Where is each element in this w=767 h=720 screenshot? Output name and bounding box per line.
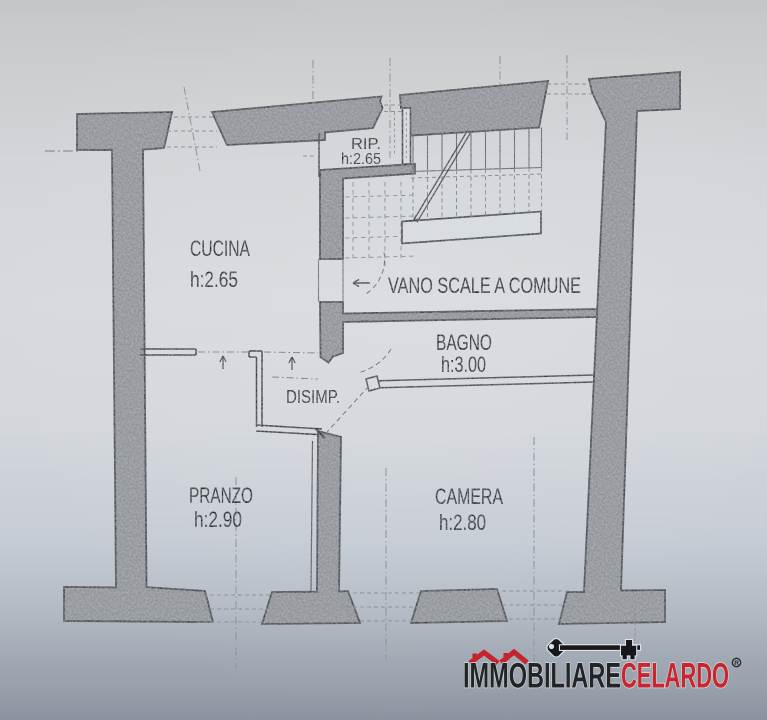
svg-text:CAMERA: CAMERA xyxy=(435,484,503,509)
svg-text:CUCINA: CUCINA xyxy=(190,236,250,261)
svg-text:DISIMP.: DISIMP. xyxy=(286,387,340,407)
svg-text:CELARDO: CELARDO xyxy=(621,657,729,696)
svg-text:h:2.65: h:2.65 xyxy=(341,151,381,168)
svg-text:PRANZO: PRANZO xyxy=(189,483,253,508)
svg-text:IMMOBILIARE: IMMOBILIARE xyxy=(463,657,621,696)
svg-text:VANO SCALE A COMUNE: VANO SCALE A COMUNE xyxy=(388,273,581,298)
svg-text:h:2.65: h:2.65 xyxy=(190,267,238,292)
svg-text:R: R xyxy=(734,660,739,667)
svg-text:h:3.00: h:3.00 xyxy=(441,352,486,377)
svg-text:h:2.90: h:2.90 xyxy=(194,507,242,532)
svg-text:h:2.80: h:2.80 xyxy=(439,510,486,535)
